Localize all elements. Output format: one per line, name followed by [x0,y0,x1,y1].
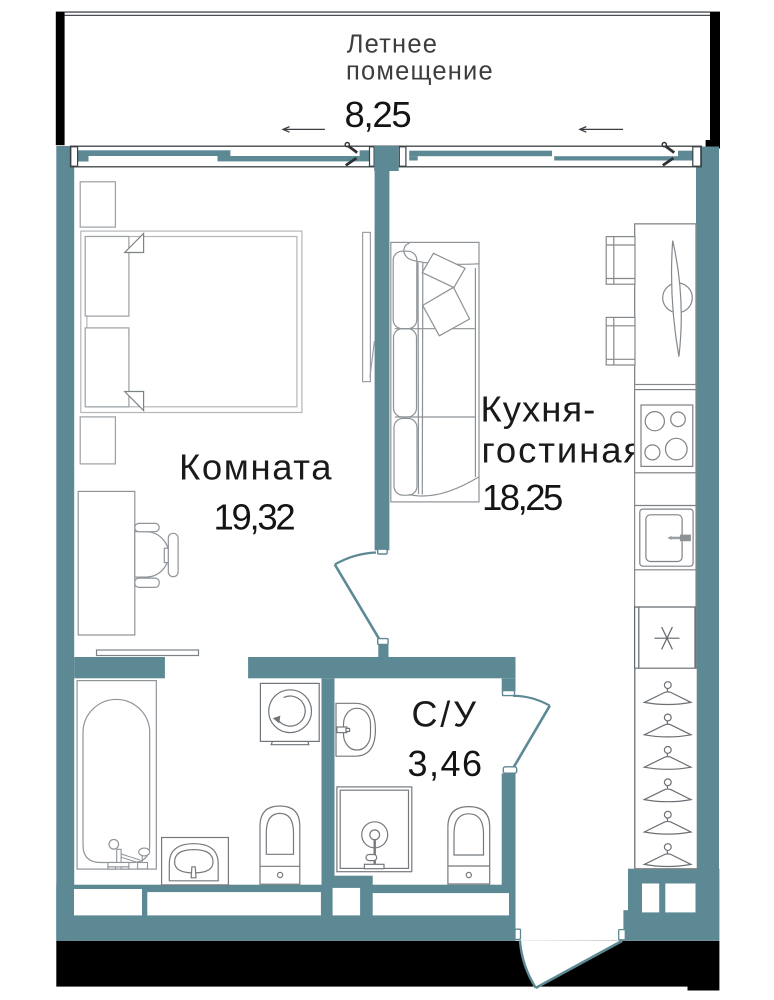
svg-text:Летнее: Летнее [347,30,438,58]
svg-text:Комната: Комната [179,447,333,488]
svg-text:18,25: 18,25 [482,477,562,518]
svg-text:помещение: помещение [346,57,494,85]
svg-text:гостиная: гостиная [482,430,646,471]
svg-text:8,25: 8,25 [345,94,411,135]
svg-text:19,32: 19,32 [214,496,295,537]
svg-text:3,46: 3,46 [408,743,484,784]
svg-text:Кухня-: Кухня- [481,389,597,430]
svg-text:С/У: С/У [412,694,479,735]
